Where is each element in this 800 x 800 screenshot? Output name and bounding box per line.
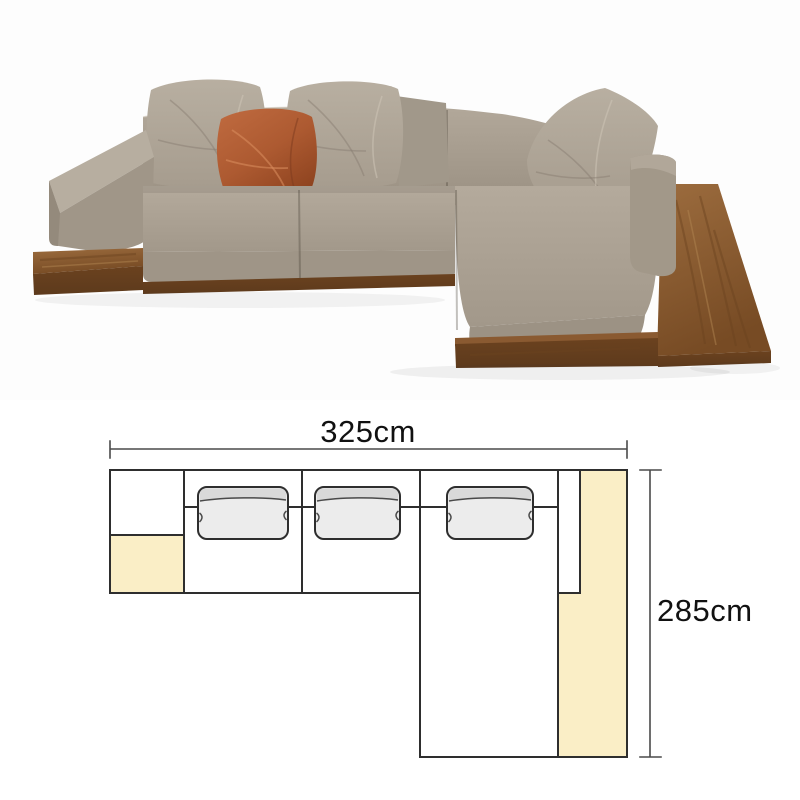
floor-shadow-right <box>390 364 730 380</box>
floor-shadow-left <box>35 292 445 308</box>
plan-highlight-left-platform <box>110 535 184 593</box>
plan-cushion-2 <box>315 487 400 539</box>
wood-platform-left <box>33 248 143 295</box>
right-armrest <box>630 155 676 277</box>
width-dimension: 325cm <box>110 414 627 458</box>
dimension-diagram: 325cm 285cm <box>0 400 800 800</box>
plan-cushion-1 <box>198 487 288 539</box>
wood-platform-chaise <box>455 332 658 368</box>
width-dimension-label: 325cm <box>320 414 416 449</box>
depth-dimension-label: 285cm <box>657 593 753 628</box>
depth-dimension: 285cm <box>640 470 753 757</box>
product-listing-image: 325cm 285cm <box>0 0 800 800</box>
sofa-photo <box>0 0 800 400</box>
floor-shadow-table <box>690 362 780 374</box>
plan-cushion-3 <box>447 487 533 539</box>
chaise-seat <box>455 186 658 349</box>
seat-cushions <box>143 186 455 282</box>
plan-highlight-right-platform <box>558 470 627 757</box>
back-pillow-sliver <box>396 96 449 188</box>
